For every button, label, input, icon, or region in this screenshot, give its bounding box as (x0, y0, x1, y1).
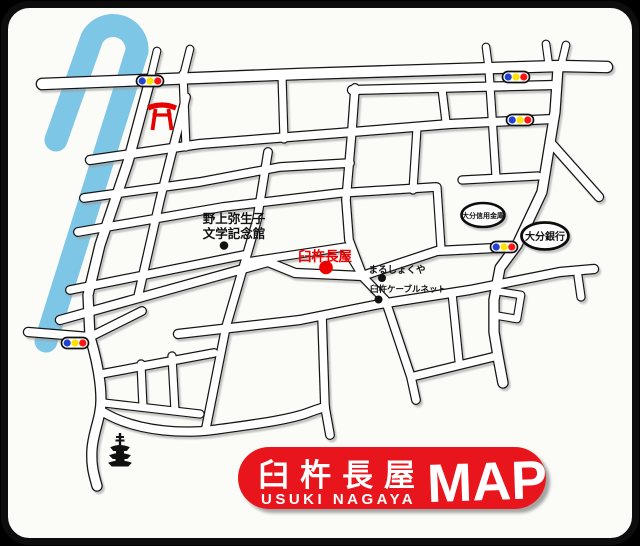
badge-title-en: USUKI NAGAYA (261, 491, 416, 508)
badge-map-word: MAP (426, 450, 548, 514)
usuki-nagaya-map: 大分信用金庫 大分銀行 野上弥生子 文学記念館 臼杵長屋 まるしょくや 臼杵ケー… (0, 0, 640, 546)
usuki-nagaya-dot (319, 261, 333, 275)
cablenet-label: 臼杵ケーブルネット (370, 284, 446, 294)
memorial-label-line1: 野上弥生子 (203, 211, 266, 226)
marushokuya-label: まるしょくや (368, 264, 425, 276)
bank-shinkin-label: 大分信用金庫 (462, 211, 504, 220)
traffic-light-icon (491, 242, 518, 253)
memorial-label-line2: 文学記念館 (203, 226, 266, 241)
memorial-dot (220, 241, 229, 250)
marushokuya-dot (378, 274, 386, 282)
traffic-light-icon (62, 338, 89, 349)
title-badge: 臼杵長屋 USUKI NAGAYA MAP (238, 447, 548, 514)
traffic-light-icon (503, 72, 530, 83)
bank-oita-label: 大分銀行 (525, 230, 565, 243)
cablenet-dot (375, 296, 383, 304)
traffic-light-icon (507, 115, 534, 126)
badge-title-jp: 臼杵長屋 (258, 458, 426, 493)
map-card: 大分信用金庫 大分銀行 野上弥生子 文学記念館 臼杵長屋 まるしょくや 臼杵ケー… (0, 0, 640, 546)
traffic-light-icon (137, 76, 164, 87)
